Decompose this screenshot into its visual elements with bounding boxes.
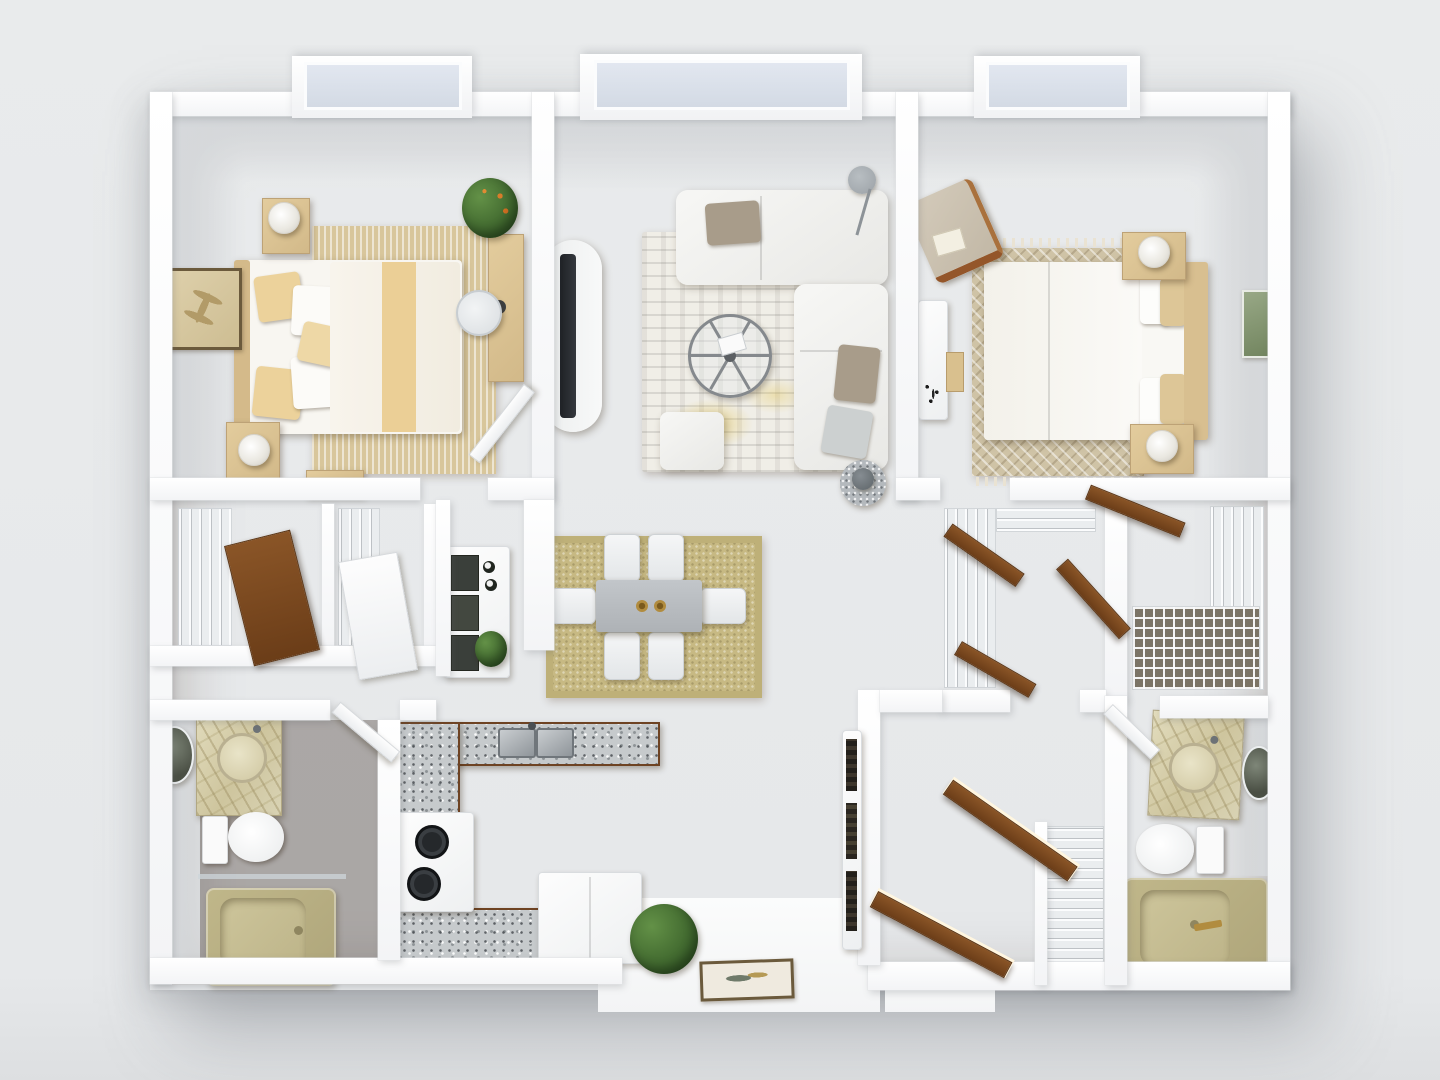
bar-hutch [444, 546, 510, 678]
palm-leaf-wall-art [166, 268, 242, 350]
dining-chair [648, 534, 684, 582]
wall-closet-divider [322, 504, 334, 646]
book [932, 227, 967, 256]
dining-chair [550, 588, 596, 624]
fridge-seam [589, 877, 591, 959]
duvet-fold [1048, 262, 1050, 440]
coffee-table [688, 314, 772, 398]
range [396, 812, 474, 912]
living-room-bay-window [580, 54, 862, 120]
wall-bedroom1-bottom-b [488, 478, 554, 500]
framed-art [699, 958, 794, 1001]
stove-burner [415, 825, 449, 859]
headboard [1184, 262, 1208, 440]
closet-wire-shelf [178, 508, 232, 646]
hutch-plant [475, 631, 507, 667]
sink-faucet [528, 722, 536, 730]
bedroom2-bay-window [974, 56, 1140, 118]
desk-chair [456, 290, 502, 336]
sink-basin [536, 728, 574, 758]
table-lamp [238, 434, 270, 466]
walkin-closet-floor-rack [1132, 606, 1260, 690]
dining-chair [700, 588, 746, 624]
wine-bottle [483, 561, 495, 573]
potted-plant [462, 178, 518, 238]
wall-bottom-left [150, 958, 622, 984]
window-glass [304, 62, 462, 110]
living-wall-face [554, 114, 896, 192]
table-lamp [1138, 236, 1170, 268]
candle-holder [654, 600, 666, 612]
art-sketch [713, 968, 778, 988]
palm-leaf-motif [173, 273, 233, 342]
vessel-sink [217, 733, 267, 783]
wall-hall-stub-a [940, 690, 1010, 712]
wall-bedroom1-living [532, 92, 554, 500]
bedroom1-bay-window [292, 56, 472, 118]
kitchen-counter-bottom [398, 908, 548, 960]
vessel-sink [1168, 742, 1221, 795]
floor-plan-scene [0, 0, 1440, 1080]
bedroom1-bed [234, 260, 462, 434]
wall-hall-stub-b [1080, 690, 1106, 712]
wall-bedroom2-bottom-b [1010, 478, 1290, 500]
floor-lamp-head [848, 166, 876, 194]
wall-closet-divider [424, 504, 436, 646]
wall-bathroom1-top-b [400, 700, 436, 720]
sink-basin [498, 728, 536, 758]
dining-chair [604, 534, 640, 582]
dining-chair [648, 632, 684, 680]
bedroom2-bed [984, 262, 1208, 440]
vanity-faucet [1210, 736, 1218, 744]
wall-pantry-left [436, 500, 450, 676]
wall-bottom-right [868, 962, 1290, 990]
bathroom2-vanity [1147, 710, 1244, 821]
wall-living-bedroom2 [896, 92, 918, 500]
wall-bathroom2-top [1160, 696, 1268, 718]
wall-bedroom1-bottom-a [150, 478, 420, 500]
tub-drain [294, 926, 303, 935]
shower-glass-screen [198, 874, 346, 879]
window-glass [594, 60, 850, 110]
wall-left [150, 92, 172, 984]
hutch-glass-panel [451, 555, 479, 591]
hall-closet-shelf-top [996, 508, 1096, 532]
dining-table [596, 580, 702, 632]
sofa-pillow [833, 344, 881, 404]
toilet-tank [202, 816, 228, 864]
vanity-faucet [253, 725, 261, 733]
bathroom1-vanity [196, 704, 282, 816]
toilet-bowl [228, 812, 284, 862]
toilet-tank [1196, 826, 1224, 874]
books [846, 739, 857, 791]
dining-chair [604, 632, 640, 680]
duvet [984, 262, 1142, 440]
duvet [330, 262, 460, 432]
bookshelf [842, 730, 862, 950]
wall-bedroom2-bottom-a [896, 478, 940, 500]
patio-plant [630, 904, 698, 974]
books [846, 803, 857, 859]
wall-entry-stub [880, 690, 942, 712]
wine-bottle [485, 579, 497, 591]
decor-branches [920, 376, 944, 412]
book-stack [946, 352, 964, 392]
wall-pantry-right [524, 500, 554, 650]
ottoman [660, 412, 724, 470]
candle-holder [636, 600, 648, 612]
duvet-runner [382, 262, 416, 432]
hutch-glass-panel [451, 595, 479, 631]
wall-entry-bathroom2-divider [1105, 696, 1127, 985]
sofa-pillow [705, 200, 762, 246]
wall-closetC-walkin-divider [1105, 500, 1127, 700]
tv [560, 254, 576, 418]
sofa-pillow [820, 404, 874, 459]
wall-bathroom1-top-a [150, 700, 330, 720]
table-lamp [268, 202, 300, 234]
refrigerator [538, 872, 642, 964]
window-glass [986, 62, 1130, 110]
magazine [717, 332, 747, 356]
books [846, 871, 857, 931]
tub-basin [1140, 890, 1230, 966]
wall-right [1268, 92, 1290, 988]
accent-pillow [1160, 374, 1186, 424]
table-lamp [1146, 430, 1178, 462]
accent-pillow [1160, 278, 1186, 326]
vase [852, 468, 874, 490]
stove-burner [407, 867, 441, 901]
toilet-bowl [1136, 824, 1194, 874]
